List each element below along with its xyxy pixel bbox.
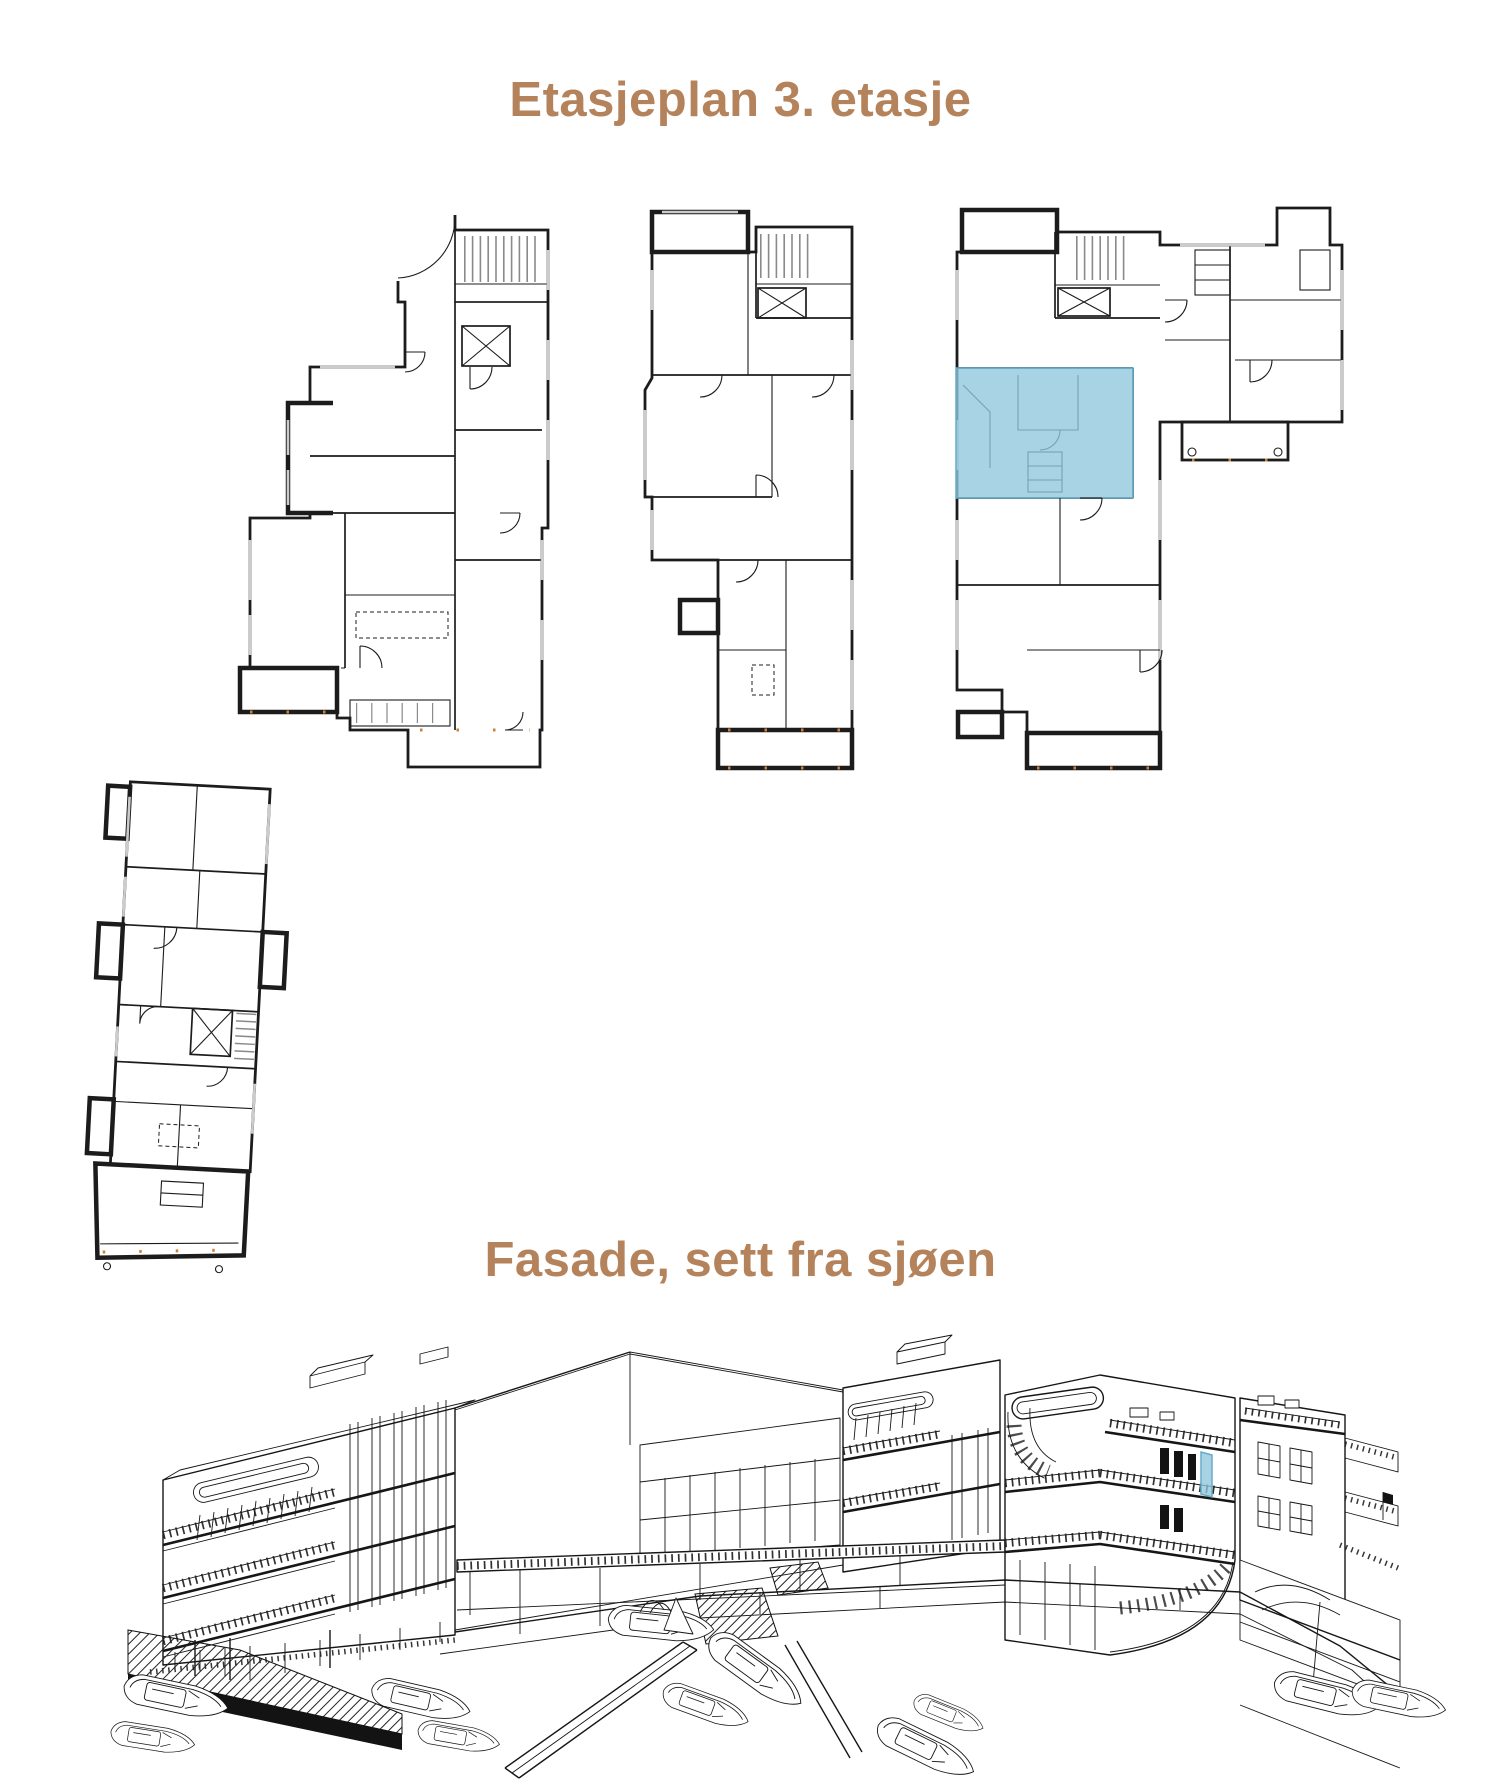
floor-plan-building-c	[956, 208, 1342, 768]
facade-drawing	[109, 1335, 1448, 1785]
highlighted-unit-floorplan	[956, 368, 1133, 498]
floor-plan-building-d	[81, 781, 294, 1279]
facade-left-building	[150, 1347, 475, 1680]
prospect-page: Etasjeplan 3. etasje Fasade, sett fra sj…	[0, 0, 1501, 1785]
facade-highlight-building	[1005, 1375, 1235, 1655]
floor-plan-building-a	[240, 215, 548, 767]
facade-mid-building	[843, 1335, 1000, 1572]
floor-plan-building-b	[645, 212, 852, 768]
highlighted-unit-facade	[1201, 1452, 1212, 1497]
drawings-canvas	[0, 0, 1501, 1785]
